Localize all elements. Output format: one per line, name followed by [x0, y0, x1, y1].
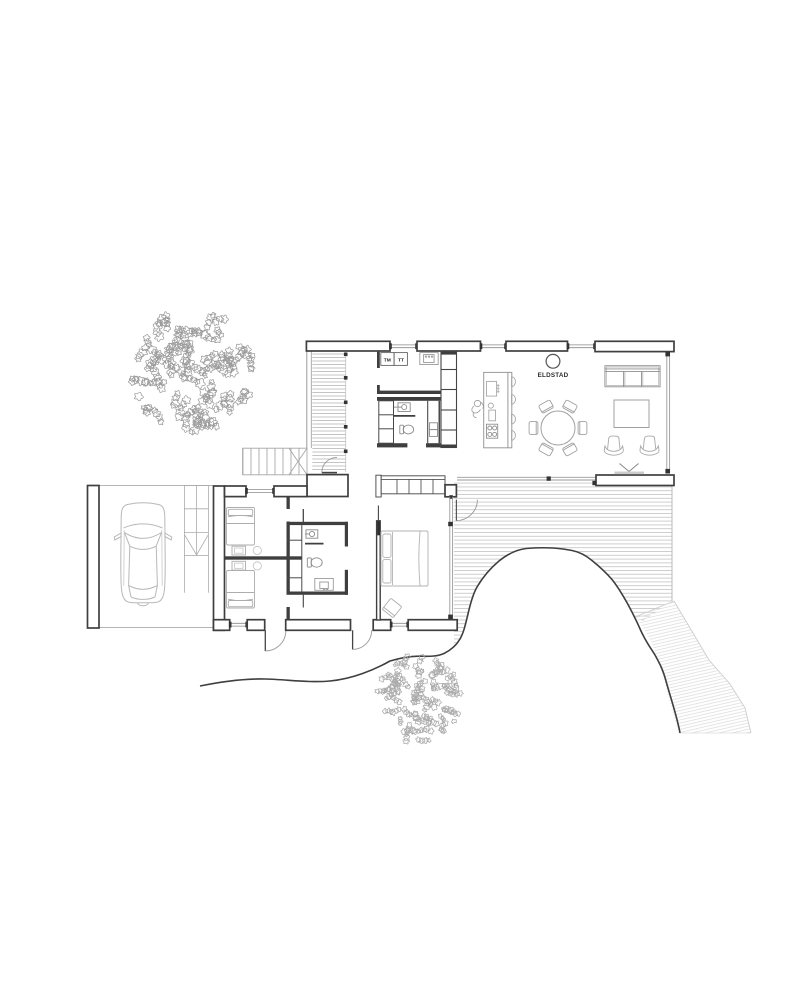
svg-text:TT: TT [398, 358, 404, 364]
svg-text:TM: TM [384, 358, 391, 364]
svg-text:ELDSTAD: ELDSTAD [538, 372, 569, 379]
